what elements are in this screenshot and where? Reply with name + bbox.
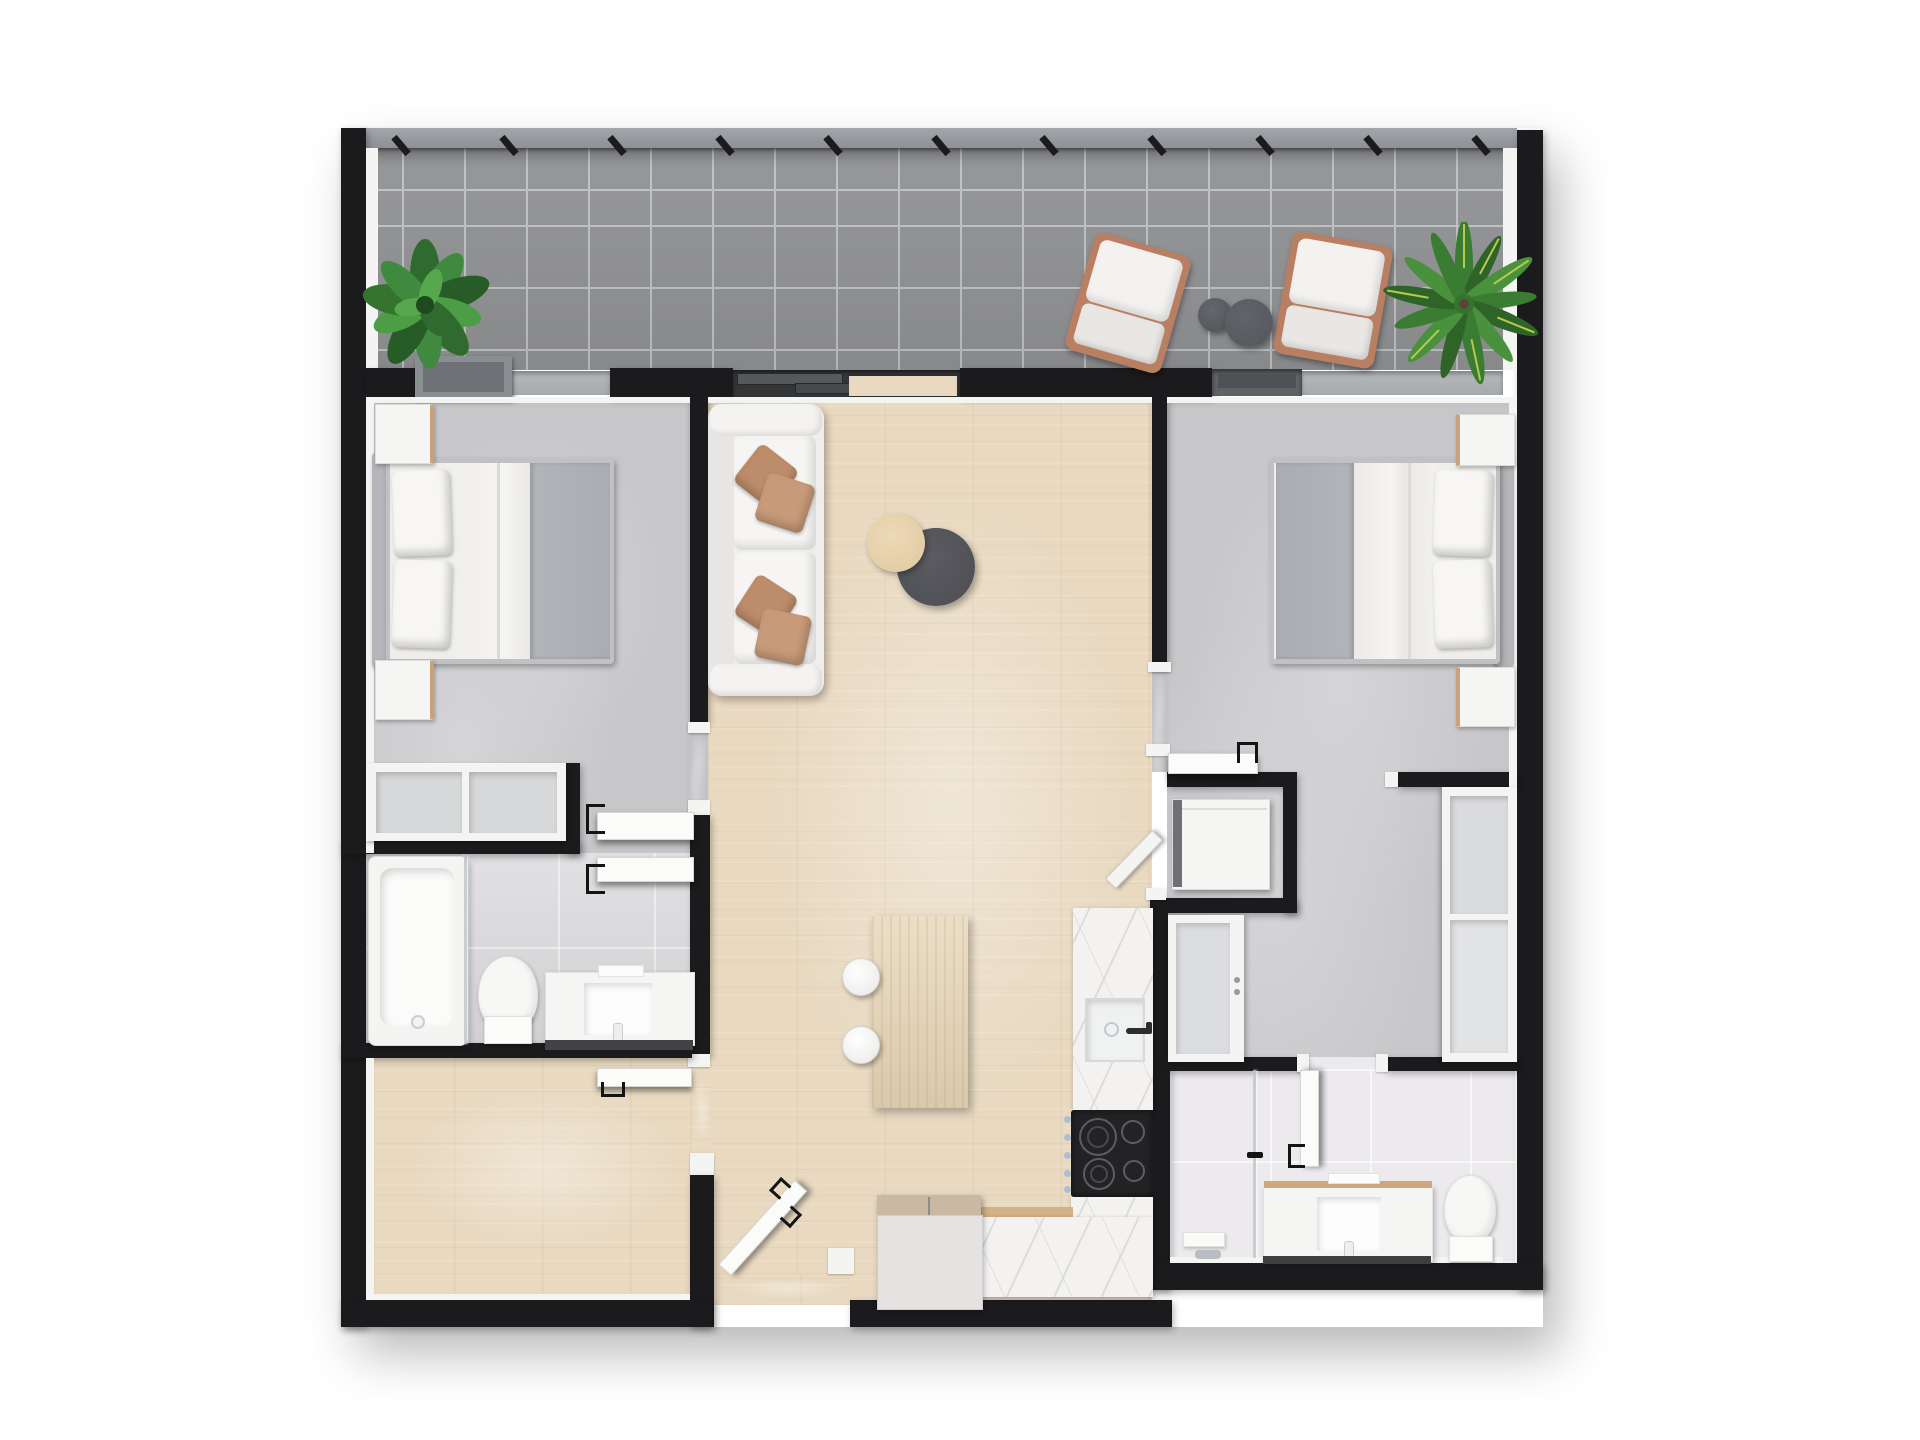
cooktop-knob bbox=[1064, 1116, 1071, 1123]
wall-closet1-side bbox=[565, 763, 580, 854]
bed2-blanket bbox=[1276, 463, 1354, 659]
sofa-armrest bbox=[710, 404, 822, 436]
fridge-door-split bbox=[928, 1197, 930, 1215]
nightstand bbox=[375, 404, 434, 464]
bathtub-basin bbox=[380, 868, 454, 1026]
vanity-counter-shadow bbox=[545, 1040, 693, 1050]
wall-closet1-bathroom1 bbox=[341, 840, 580, 854]
bathtub-drain bbox=[411, 1015, 425, 1029]
wall-laundry-top bbox=[1167, 772, 1297, 787]
kitchen-counter-mid bbox=[1071, 1197, 1153, 1219]
stool bbox=[842, 1026, 880, 1064]
kitchen-counter-bottom bbox=[980, 1217, 1153, 1297]
pantry-knob bbox=[1234, 989, 1240, 995]
bed2-duvet-fold bbox=[1408, 463, 1411, 659]
room-trim bbox=[1167, 397, 1517, 403]
closet1-shelving bbox=[366, 763, 566, 841]
room-trim bbox=[366, 397, 690, 403]
cooktop bbox=[1071, 1110, 1153, 1197]
toilet-2 bbox=[1444, 1175, 1494, 1261]
floor-plan-image bbox=[0, 0, 1920, 1440]
nightstand bbox=[375, 660, 434, 720]
closet2-cubby bbox=[1450, 920, 1508, 1053]
bathtub bbox=[368, 856, 468, 1046]
wall-laundry-bottom bbox=[1150, 898, 1297, 913]
washer bbox=[1172, 799, 1270, 890]
vanity-2 bbox=[1263, 1186, 1433, 1262]
entry-door-jamb bbox=[828, 1248, 854, 1274]
potted-plant-right bbox=[1382, 222, 1546, 386]
pantry-cabinet bbox=[1168, 915, 1244, 1062]
lounge-chair-2 bbox=[1272, 230, 1394, 370]
nightstand bbox=[1456, 414, 1515, 466]
fridge-body bbox=[877, 1215, 983, 1310]
bed1-duvet-fold bbox=[497, 463, 500, 659]
toilet-1 bbox=[478, 956, 536, 1044]
throw-pillow bbox=[753, 607, 812, 666]
cooktop-knob bbox=[1064, 1170, 1071, 1177]
door-bedroom1-handle bbox=[586, 804, 605, 834]
living-sliding-door bbox=[733, 370, 960, 397]
wall-cap bbox=[1376, 1054, 1388, 1072]
bed1-blanket bbox=[530, 463, 610, 659]
wall-cap bbox=[1146, 888, 1166, 900]
door-channel-inner bbox=[1218, 374, 1296, 388]
bathroom2-doorway-floor bbox=[1307, 1057, 1385, 1071]
facade-wall-segment bbox=[960, 368, 1212, 397]
bedroom2-doorway-floor bbox=[1152, 668, 1167, 772]
burner-inner bbox=[1087, 1126, 1109, 1148]
burner-inner bbox=[1090, 1165, 1108, 1183]
bedroom2-balcony-door-channel bbox=[1212, 369, 1302, 396]
toilet-bowl bbox=[1444, 1175, 1496, 1243]
bed2-duvet bbox=[1354, 463, 1436, 659]
wall-bedroom1-living bbox=[690, 397, 708, 722]
wall-kitchen-pantry bbox=[1153, 913, 1168, 1070]
closet1-cubby bbox=[469, 772, 557, 833]
wall-cap bbox=[1385, 772, 1398, 787]
cooktop-knob bbox=[1064, 1134, 1071, 1141]
bed1-pillow bbox=[392, 469, 453, 557]
bed2-pillow bbox=[1432, 559, 1493, 649]
sink-drain bbox=[1104, 1022, 1119, 1037]
stool bbox=[842, 958, 880, 996]
den-floor bbox=[366, 1058, 690, 1300]
toilet-tank bbox=[1449, 1236, 1493, 1262]
wall-cap bbox=[688, 722, 710, 733]
bed2-pillow bbox=[1433, 469, 1494, 557]
nightstand bbox=[1456, 667, 1515, 727]
burner bbox=[1121, 1120, 1145, 1144]
door-bedroom2-handle bbox=[1237, 742, 1258, 763]
entry-threshold-floor bbox=[712, 1275, 850, 1305]
kitchen-faucet-stem bbox=[1146, 1022, 1152, 1034]
outer-wall-bottom-right bbox=[1150, 1263, 1543, 1290]
vanity2-counter-shadow bbox=[1263, 1256, 1431, 1264]
door-bathroom1 bbox=[597, 857, 694, 882]
room-trim bbox=[708, 397, 1152, 403]
shower-2-glass bbox=[1253, 1070, 1256, 1258]
closet1-cubby bbox=[376, 772, 462, 833]
wall-closet2-top bbox=[1397, 772, 1517, 787]
bedroom1-window-sill bbox=[512, 371, 612, 395]
toilet-tank bbox=[484, 1016, 532, 1044]
burner bbox=[1123, 1160, 1145, 1182]
kitchen-island bbox=[872, 916, 968, 1108]
coffee-table-light bbox=[867, 514, 925, 572]
pantry-door-panel bbox=[1176, 923, 1230, 1054]
closet2-shelving bbox=[1442, 787, 1517, 1062]
shower-2-handle bbox=[1247, 1152, 1263, 1158]
wall-living-bedroom2 bbox=[1152, 397, 1167, 668]
cooktop-knob bbox=[1064, 1152, 1071, 1159]
sliding-door-open-gap bbox=[849, 373, 957, 399]
shower-glass-panel bbox=[464, 856, 467, 1044]
washer-panel-line bbox=[1182, 808, 1267, 810]
outer-wall-bottom-left bbox=[341, 1300, 712, 1327]
sofa-backrest bbox=[708, 404, 734, 696]
closet2-cubby bbox=[1450, 796, 1508, 914]
wall-bathroom2-left bbox=[1150, 1070, 1170, 1290]
potted-plant-left bbox=[352, 232, 498, 378]
pantry-knob bbox=[1234, 977, 1240, 983]
shower-2-bench bbox=[1183, 1232, 1225, 1247]
bed1-pillow bbox=[391, 559, 452, 649]
chair-back-cushion bbox=[1288, 237, 1386, 317]
facade-wall-segment bbox=[610, 368, 733, 397]
wall-cap bbox=[1146, 744, 1170, 756]
door-bathroom1-handle bbox=[586, 864, 605, 894]
door-bathroom2-handle bbox=[1288, 1144, 1305, 1168]
door-bedroom1 bbox=[597, 812, 694, 840]
vanity-tray bbox=[598, 965, 644, 977]
refrigerator-cabinet bbox=[877, 1195, 981, 1308]
sofa-armrest bbox=[710, 664, 822, 696]
wall-cap bbox=[690, 1153, 714, 1175]
door-den-handle bbox=[601, 1082, 625, 1097]
shower-2-drain bbox=[1195, 1250, 1221, 1259]
wall-cap bbox=[1148, 662, 1171, 672]
den-doorway-floor bbox=[690, 1066, 712, 1166]
room-trim bbox=[366, 1058, 374, 1300]
outdoor-side-table-large bbox=[1225, 299, 1273, 347]
vanity-1 bbox=[545, 972, 695, 1046]
wall-laundry-right bbox=[1283, 787, 1297, 913]
washer-door-edge bbox=[1173, 800, 1182, 887]
hall-doorway-floor bbox=[690, 730, 708, 802]
room-trim bbox=[366, 1294, 690, 1300]
cooktop-knob bbox=[1064, 1186, 1071, 1193]
vanity-tray bbox=[1328, 1173, 1380, 1184]
